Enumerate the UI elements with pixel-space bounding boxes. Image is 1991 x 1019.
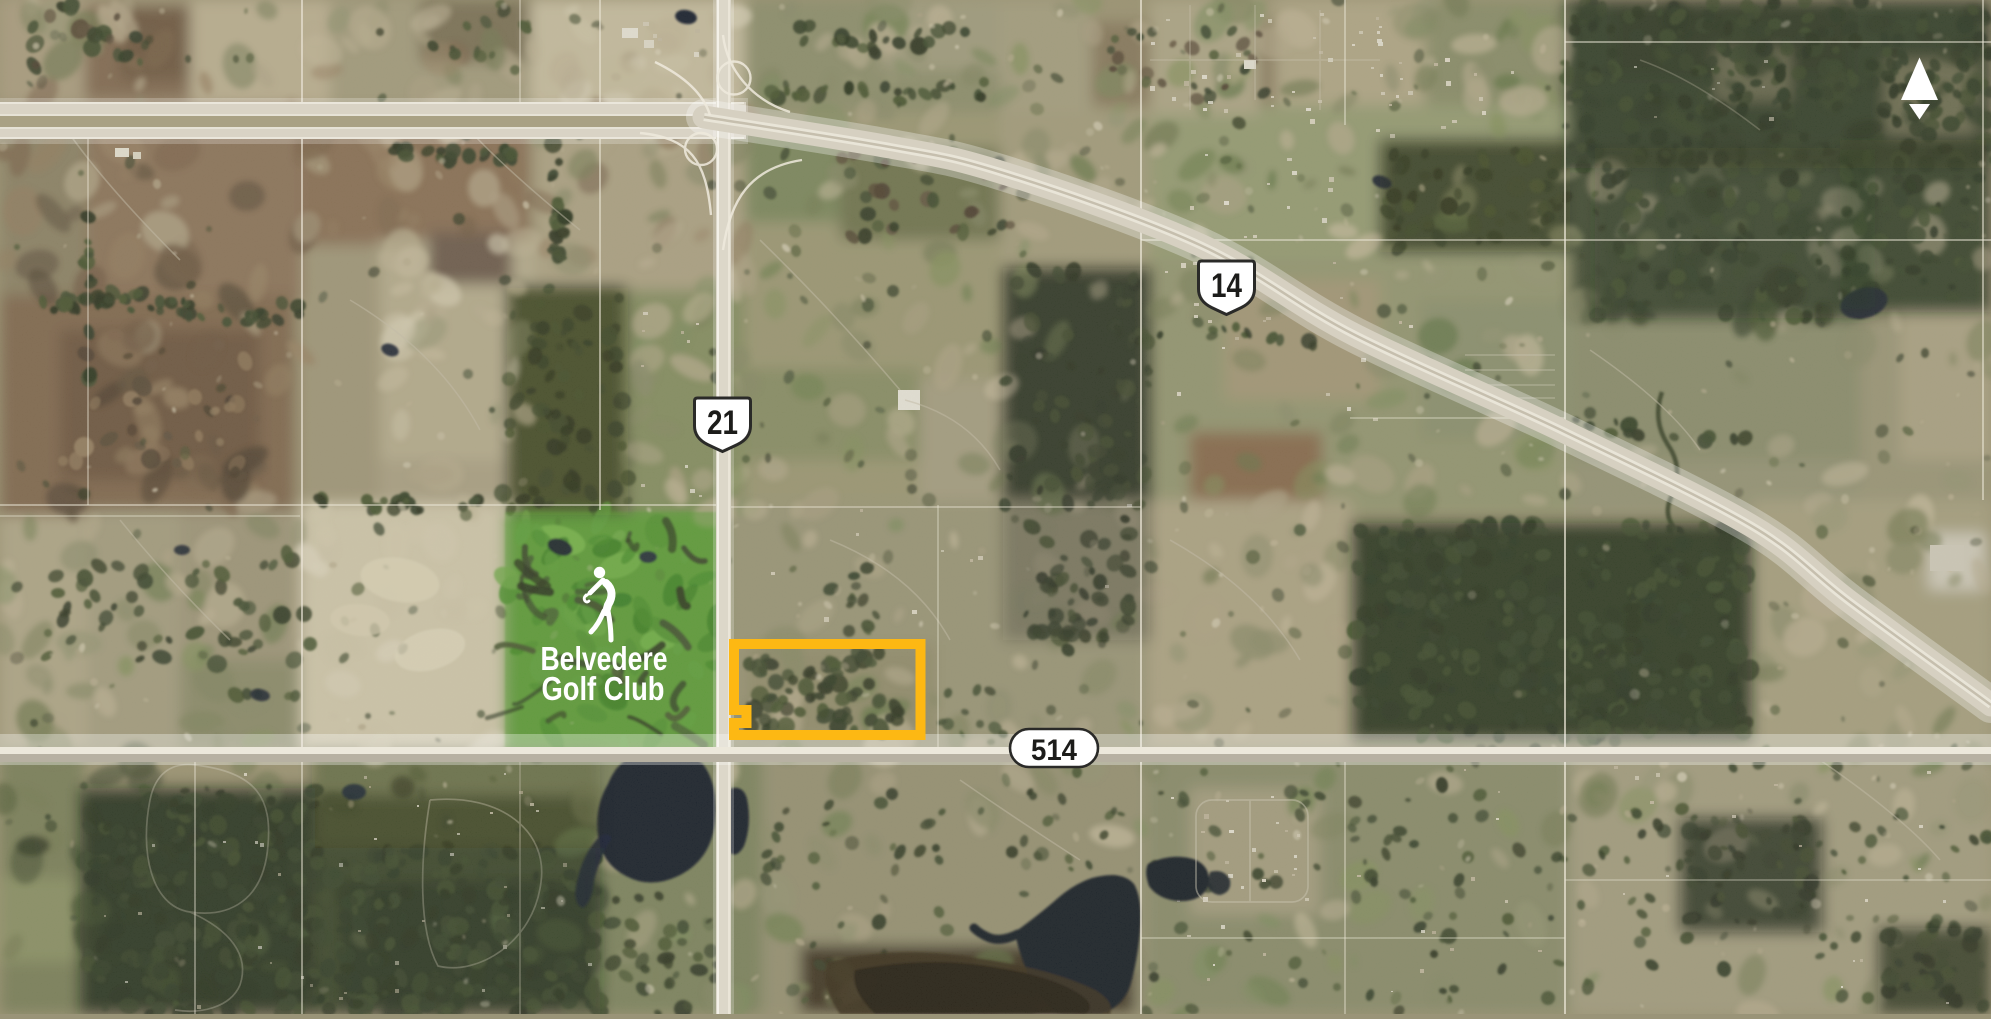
svg-text:514: 514: [1031, 734, 1077, 767]
svg-text:14: 14: [1211, 267, 1242, 305]
svg-text:Golf Club: Golf Club: [542, 670, 665, 707]
svg-text:21: 21: [707, 404, 738, 442]
